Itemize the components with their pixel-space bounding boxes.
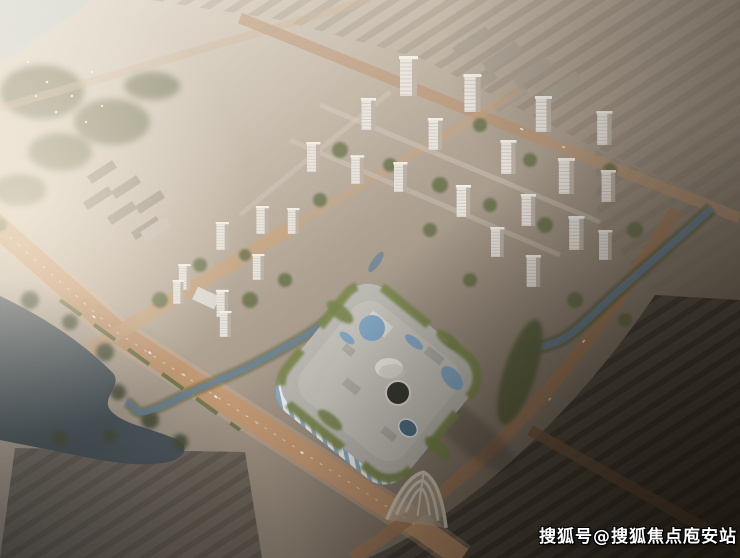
- sohu-watermark: 搜狐号@搜狐焦点庖安站: [539, 522, 737, 547]
- rendering-canvas: [0, 0, 740, 558]
- atmosphere-haze: [0, 0, 740, 558]
- aerial-render-image: 搜狐号@搜狐焦点庖安站: [0, 0, 740, 558]
